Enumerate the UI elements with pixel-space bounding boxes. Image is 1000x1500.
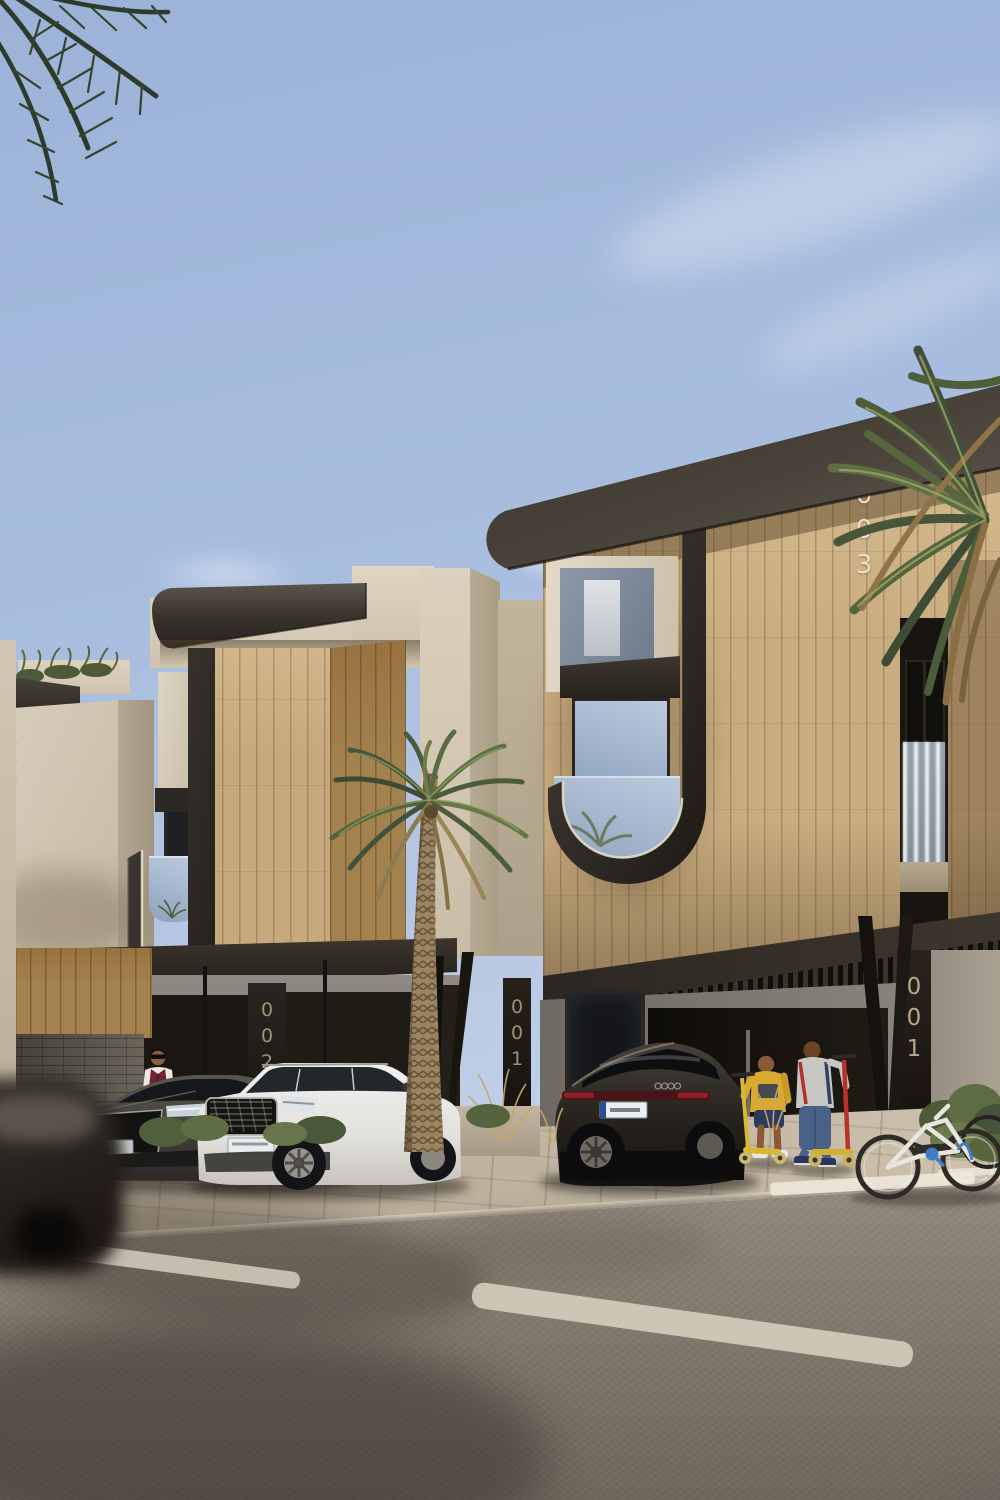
scene-canvas: 003 003 bbox=[0, 0, 1000, 1500]
blurred-car-wheel bbox=[13, 1206, 83, 1262]
bicycles bbox=[0, 0, 1000, 1500]
blurred-car-window bbox=[0, 1096, 95, 1142]
blurred-passing-car bbox=[0, 1078, 123, 1273]
